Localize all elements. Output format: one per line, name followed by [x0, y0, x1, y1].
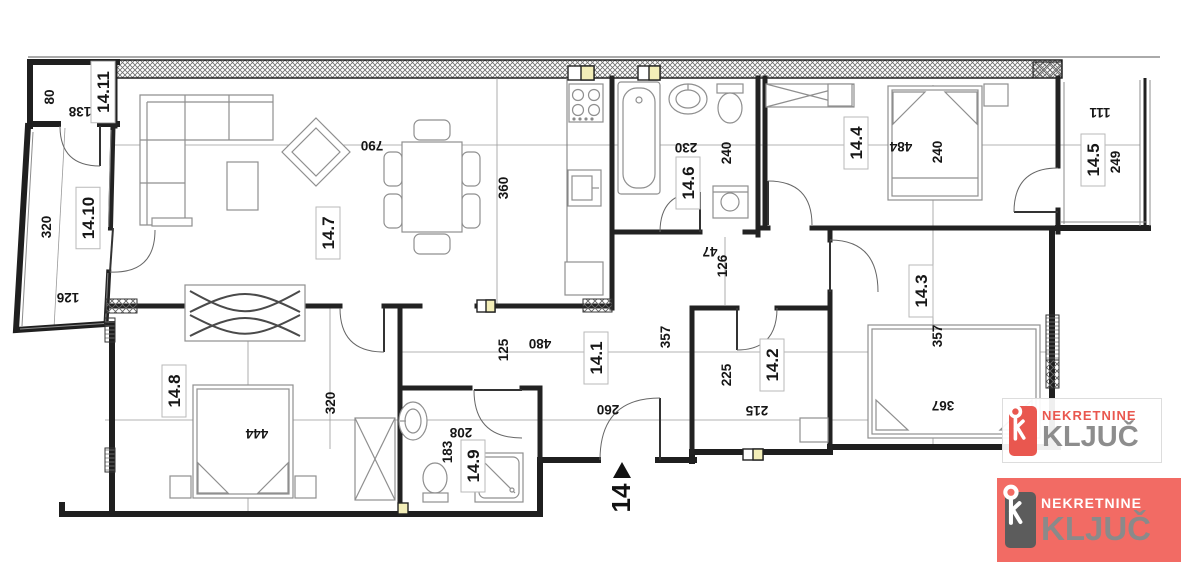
coffee-table: [227, 162, 258, 210]
entrance-arrow: [613, 462, 631, 478]
logo-brand-word: KLJUČ: [1041, 512, 1151, 545]
vent: [398, 503, 408, 514]
key-icon: [1009, 406, 1037, 456]
nightstand: [800, 418, 828, 442]
room-label: 14.5: [1081, 134, 1105, 186]
logo-brand-word: KLJUČ: [1042, 423, 1139, 452]
door-room-144: [768, 181, 812, 225]
svg-text:14.6: 14.6: [679, 166, 698, 199]
svg-text:208: 208: [449, 425, 472, 440]
dim-label: 215: [745, 403, 768, 418]
svg-text:80: 80: [42, 89, 57, 104]
kitchen-cabinet: [565, 262, 603, 295]
dim-label: 444: [245, 426, 268, 441]
closet-tall: [355, 418, 395, 500]
svg-text:360: 360: [496, 177, 511, 200]
dim-label: 320: [323, 392, 338, 415]
dim-label: 260: [597, 402, 620, 417]
door-balcony-145: [1014, 168, 1058, 212]
svg-text:367: 367: [932, 398, 955, 413]
dim-label: 208: [449, 425, 472, 440]
room-label: 14.7: [316, 207, 340, 259]
watermark-logo-red: NEKRETNINE KLJUČ: [997, 478, 1181, 562]
door-bathroom-149: [474, 390, 522, 438]
room-label: 14.6: [676, 157, 700, 209]
nightstand: [295, 476, 316, 498]
dim-label: 357: [930, 325, 945, 348]
door-room-148: [340, 308, 384, 352]
logo-brand-name: NEKRETNINE: [1041, 496, 1151, 510]
dim-label: 111: [1089, 105, 1111, 120]
key-icon: [1005, 492, 1036, 548]
svg-text:215: 215: [745, 403, 768, 418]
vent: [568, 66, 594, 80]
washing-machine: [713, 186, 748, 218]
svg-text:320: 320: [323, 392, 338, 415]
floorplan-page: 14 8013814.1132014.1012679014.7360230240…: [0, 0, 1200, 580]
svg-text:225: 225: [719, 363, 734, 386]
svg-text:320: 320: [39, 216, 54, 239]
svg-text:240: 240: [719, 142, 734, 165]
dim-label: 480: [529, 336, 552, 351]
dim-label: 126: [715, 254, 730, 277]
dim-label: 240: [930, 141, 945, 164]
room-label: 14.9: [461, 440, 485, 492]
svg-text:790: 790: [361, 138, 384, 153]
dim-label: 790: [361, 138, 384, 153]
svg-text:357: 357: [930, 325, 945, 348]
dim-label: 249: [1108, 151, 1123, 174]
nightstand: [828, 84, 852, 106]
nightstand: [984, 84, 1008, 106]
svg-text:14.4: 14.4: [847, 126, 866, 160]
door-living-terrace: [110, 228, 155, 272]
vent: [638, 66, 660, 80]
dim-label: 367: [932, 398, 955, 413]
dim-label: 320: [39, 216, 54, 239]
bathtub: [618, 82, 660, 194]
watermark-logo-light: NEKRETNINE KLJUČ: [1002, 398, 1162, 463]
door-room-143: [830, 240, 878, 292]
washbasin: [399, 402, 427, 440]
room-label: 14.4: [844, 117, 868, 169]
dim-label: 80: [42, 89, 57, 104]
dim-label: 360: [496, 177, 511, 200]
svg-text:111: 111: [1089, 105, 1111, 120]
dim-label: 183: [440, 440, 455, 463]
entrance-number: 14: [606, 483, 636, 512]
svg-text:480: 480: [529, 336, 552, 351]
svg-text:14.8: 14.8: [165, 374, 184, 407]
svg-text:230: 230: [675, 140, 698, 155]
svg-text:14.7: 14.7: [319, 216, 338, 249]
svg-text:125: 125: [496, 338, 511, 361]
svg-text:126: 126: [56, 290, 79, 305]
svg-text:260: 260: [597, 402, 620, 417]
bed-148: [193, 385, 293, 498]
svg-text:14.2: 14.2: [763, 348, 782, 381]
room-label: 14.11: [91, 61, 115, 123]
vent: [743, 449, 763, 460]
dim-label: 240: [719, 142, 734, 165]
svg-text:126: 126: [715, 254, 730, 277]
room-label: 14.8: [162, 365, 186, 417]
svg-text:14.9: 14.9: [464, 449, 483, 482]
room-label: 14.1: [584, 332, 608, 384]
svg-text:484: 484: [889, 139, 912, 154]
door-closet-terrace: [60, 126, 100, 166]
svg-text:240: 240: [930, 141, 945, 164]
svg-text:14.1: 14.1: [587, 341, 606, 374]
armchair: [282, 118, 350, 186]
toilet: [717, 84, 743, 123]
svg-text:14.11: 14.11: [94, 71, 113, 113]
dining-table-set: [384, 120, 480, 254]
dim-label: 484: [889, 139, 912, 154]
svg-text:444: 444: [245, 426, 268, 441]
dim-label: 225: [719, 363, 734, 386]
room-label: 14.10: [76, 187, 100, 249]
nightstand: [170, 476, 191, 498]
room-label: 14.3: [909, 265, 933, 317]
dim-label: 125: [496, 338, 511, 361]
dim-label: 230: [675, 140, 698, 155]
washbasin: [669, 84, 707, 114]
svg-text:138: 138: [68, 104, 91, 119]
svg-text:249: 249: [1108, 151, 1123, 174]
svg-text:14.10: 14.10: [79, 197, 98, 240]
dim-label: 357: [658, 326, 673, 349]
vent: [477, 300, 495, 312]
kitchen-sink: [568, 170, 601, 206]
wardrobe-148: [185, 285, 305, 341]
svg-text:14.3: 14.3: [912, 274, 931, 307]
svg-text:357: 357: [658, 326, 673, 349]
svg-text:14.5: 14.5: [1084, 143, 1103, 176]
dim-label: 138: [68, 104, 91, 119]
room-label: 14.2: [760, 339, 784, 391]
svg-text:183: 183: [440, 440, 455, 463]
stove: [569, 84, 603, 122]
toilet: [423, 463, 448, 502]
dim-label: 126: [56, 290, 79, 305]
